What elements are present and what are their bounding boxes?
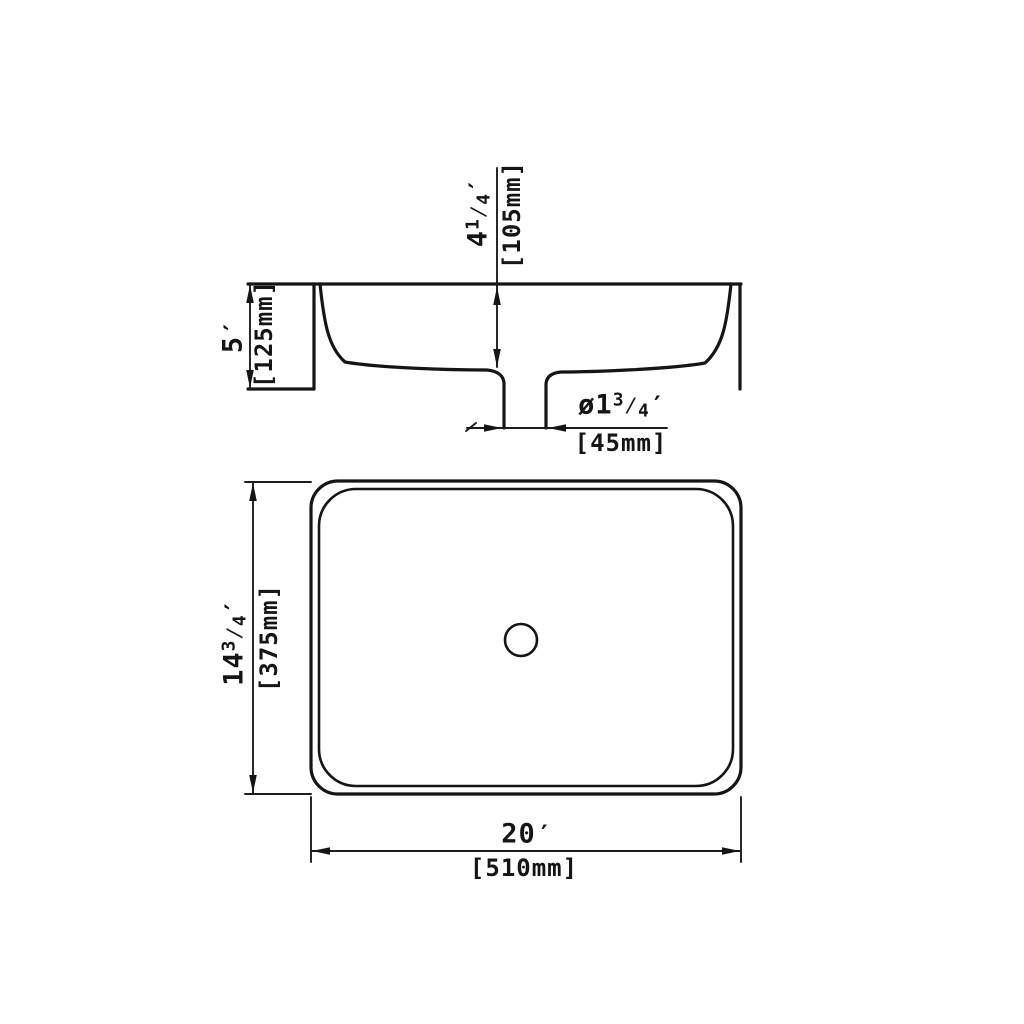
inch-whole: 20 bbox=[501, 819, 536, 850]
inch-whole: 5 bbox=[218, 336, 249, 353]
sink-inner-rim bbox=[319, 489, 733, 786]
arrowhead-left bbox=[548, 424, 566, 432]
inch-mark: ′ bbox=[464, 177, 493, 193]
fraction-slash: ⁄ bbox=[221, 626, 249, 640]
fraction-numerator: 3 bbox=[613, 390, 624, 411]
dim-label-overall-height-metric: [125mm] bbox=[252, 280, 276, 388]
section-view bbox=[248, 284, 741, 428]
dim-label-plan-width-metric: [510mm] bbox=[470, 856, 578, 880]
fraction-slash: ⁄ bbox=[465, 205, 493, 219]
dim-label-overall-height-inches: 5′ bbox=[220, 319, 247, 353]
fraction-slash: ⁄ bbox=[624, 392, 638, 420]
inch-whole: 4 bbox=[463, 230, 494, 247]
inch-mark: ′ bbox=[537, 820, 553, 849]
arrowhead-down bbox=[249, 775, 257, 793]
inch-whole: 1 bbox=[595, 390, 612, 421]
arrowhead-left bbox=[312, 847, 330, 855]
fraction-numerator: 3 bbox=[219, 640, 240, 651]
dim-label-drain-diameter-metric: [45mm] bbox=[575, 431, 668, 455]
fraction-denominator: 4 bbox=[474, 194, 495, 205]
fraction-denominator: 4 bbox=[230, 615, 251, 626]
plan-view bbox=[311, 481, 741, 794]
arrowhead-right bbox=[722, 847, 740, 855]
inch-mark: ′ bbox=[650, 391, 666, 420]
inch-mark: ′ bbox=[220, 598, 249, 614]
left-basin-profile bbox=[320, 284, 504, 428]
dim-label-plan-width-inches: 20′ bbox=[501, 821, 553, 848]
inch-mark: ′ bbox=[219, 319, 248, 335]
arrowhead-up bbox=[249, 483, 257, 501]
dim-line-drain-end-tick bbox=[466, 423, 476, 431]
fraction-denominator: 4 bbox=[638, 401, 649, 422]
sink-dimension-drawing: 41⁄4′ [105mm] 5′ [125mm] ø13⁄4′ [45mm] 1… bbox=[0, 0, 1024, 1024]
dim-label-plan-depth-metric: [375mm] bbox=[257, 584, 281, 692]
arrowhead-down bbox=[493, 349, 501, 367]
diameter-symbol: ø bbox=[578, 390, 595, 421]
inch-whole: 14 bbox=[219, 651, 250, 686]
sink-outer-edge bbox=[311, 481, 741, 794]
arrowhead-up bbox=[493, 287, 501, 305]
dim-label-drain-diameter-inches: ø13⁄4′ bbox=[578, 392, 666, 419]
dim-label-plan-depth-inches: 143⁄4′ bbox=[221, 598, 248, 686]
dim-label-basin-depth-inches: 41⁄4′ bbox=[465, 177, 492, 247]
dim-label-basin-depth-metric: [105mm] bbox=[500, 161, 524, 269]
drain-hole bbox=[505, 624, 537, 656]
fraction-numerator: 1 bbox=[463, 219, 484, 230]
arrowhead-right bbox=[484, 424, 502, 432]
